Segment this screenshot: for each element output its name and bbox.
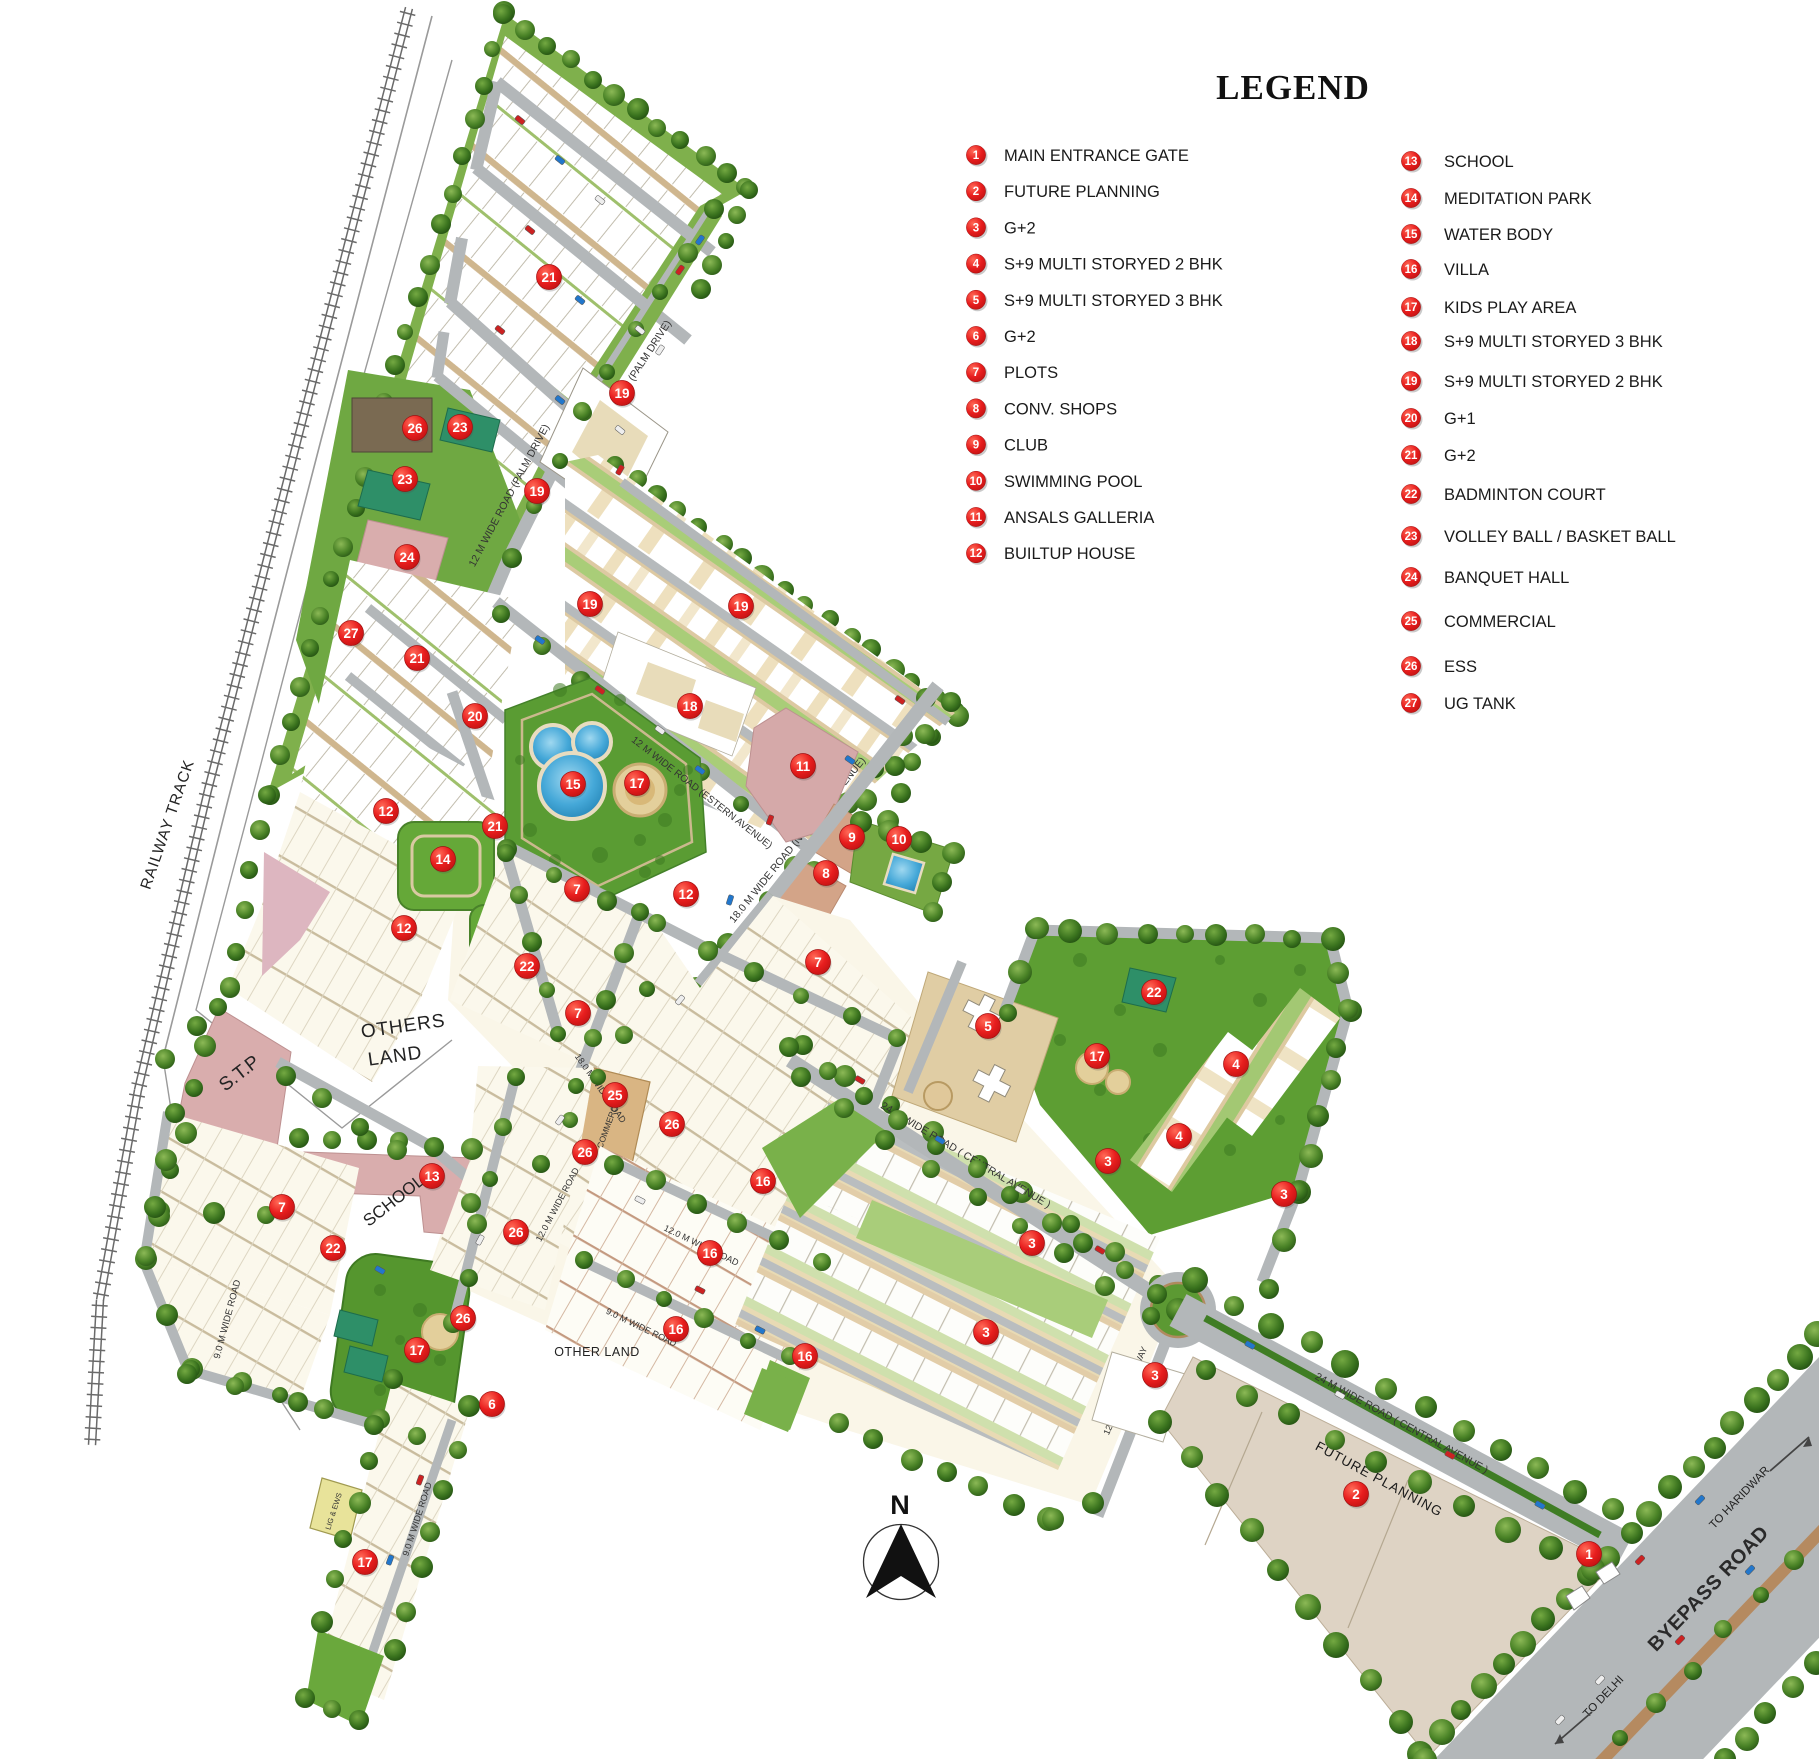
svg-text:S+9 MULTI STORYED 2 BHK: S+9 MULTI STORYED 2 BHK — [1444, 373, 1663, 391]
svg-text:2: 2 — [973, 186, 979, 198]
svg-text:16: 16 — [797, 1349, 813, 1364]
svg-text:16: 16 — [702, 1246, 718, 1261]
svg-text:21: 21 — [1405, 450, 1418, 462]
svg-text:15: 15 — [565, 777, 581, 792]
svg-text:27: 27 — [343, 626, 358, 641]
svg-text:3: 3 — [982, 1325, 990, 1340]
svg-text:FUTURE PLANNING: FUTURE PLANNING — [1004, 183, 1160, 201]
svg-text:26: 26 — [577, 1145, 593, 1160]
svg-text:S+9 MULTI STORYED 3 BHK: S+9 MULTI STORYED 3 BHK — [1004, 292, 1223, 310]
svg-text:CLUB: CLUB — [1004, 437, 1048, 455]
svg-text:12: 12 — [970, 548, 983, 560]
svg-text:N: N — [890, 1490, 910, 1520]
svg-text:ESS: ESS — [1444, 658, 1477, 676]
svg-text:18: 18 — [1405, 336, 1418, 348]
svg-text:17: 17 — [357, 1555, 372, 1570]
svg-text:2: 2 — [1352, 1487, 1360, 1502]
svg-text:22: 22 — [1146, 985, 1161, 1000]
svg-text:MEDITATION PARK: MEDITATION PARK — [1444, 190, 1592, 208]
svg-text:3: 3 — [973, 222, 979, 234]
svg-text:24: 24 — [399, 550, 415, 565]
svg-text:6: 6 — [973, 331, 979, 343]
svg-text:10: 10 — [970, 476, 983, 488]
svg-text:4: 4 — [1232, 1057, 1240, 1072]
svg-text:16: 16 — [755, 1174, 771, 1189]
svg-text:BANQUET HALL: BANQUET HALL — [1444, 569, 1569, 587]
svg-text:BUILTUP HOUSE: BUILTUP HOUSE — [1004, 545, 1135, 563]
svg-text:19: 19 — [582, 597, 597, 612]
svg-text:7: 7 — [973, 367, 979, 379]
svg-text:WATER BODY: WATER BODY — [1444, 226, 1553, 244]
svg-text:G+2: G+2 — [1444, 447, 1476, 465]
svg-text:PLOTS: PLOTS — [1004, 364, 1058, 382]
svg-text:S+9 MULTI STORYED 3 BHK: S+9 MULTI STORYED 3 BHK — [1444, 333, 1663, 351]
svg-text:14: 14 — [1405, 193, 1418, 205]
svg-text:G+2: G+2 — [1004, 219, 1036, 237]
svg-text:9: 9 — [973, 440, 979, 452]
svg-text:22: 22 — [519, 959, 534, 974]
svg-text:17: 17 — [1405, 302, 1418, 314]
svg-text:7: 7 — [814, 955, 822, 970]
svg-text:3: 3 — [1028, 1236, 1036, 1251]
svg-text:G+1: G+1 — [1444, 410, 1476, 428]
svg-text:19: 19 — [1405, 376, 1418, 388]
svg-text:LEGEND: LEGEND — [1216, 68, 1370, 107]
svg-text:1: 1 — [1585, 1547, 1593, 1562]
svg-text:4: 4 — [1175, 1129, 1183, 1144]
svg-text:5: 5 — [984, 1019, 992, 1034]
svg-text:ANSALS GALLERIA: ANSALS GALLERIA — [1004, 509, 1154, 527]
svg-text:SWIMMING POOL: SWIMMING POOL — [1004, 473, 1142, 491]
svg-text:7: 7 — [573, 882, 581, 897]
svg-text:UG TANK: UG TANK — [1444, 695, 1516, 713]
svg-text:23: 23 — [452, 420, 468, 435]
svg-text:VOLLEY BALL / BASKET BALL: VOLLEY BALL / BASKET BALL — [1444, 528, 1676, 546]
svg-text:7: 7 — [574, 1006, 582, 1021]
svg-text:12: 12 — [396, 921, 411, 936]
svg-text:KIDS PLAY AREA: KIDS PLAY AREA — [1444, 299, 1576, 317]
svg-text:16: 16 — [1405, 264, 1418, 276]
svg-text:4: 4 — [973, 259, 980, 271]
svg-text:19: 19 — [614, 386, 629, 401]
svg-text:11: 11 — [970, 512, 983, 524]
svg-text:23: 23 — [1405, 531, 1418, 543]
svg-text:21: 21 — [541, 270, 557, 285]
svg-text:17: 17 — [409, 1343, 424, 1358]
svg-text:3: 3 — [1104, 1154, 1112, 1169]
svg-text:8: 8 — [822, 866, 830, 881]
svg-text:20: 20 — [1405, 413, 1418, 425]
svg-text:10: 10 — [891, 832, 906, 847]
svg-text:1: 1 — [973, 150, 980, 162]
svg-text:7: 7 — [278, 1200, 286, 1215]
svg-text:24: 24 — [1405, 572, 1418, 584]
svg-text:9: 9 — [848, 830, 856, 845]
svg-text:BADMINTON COURT: BADMINTON COURT — [1444, 486, 1606, 504]
svg-text:21: 21 — [409, 651, 425, 666]
svg-text:12: 12 — [378, 804, 393, 819]
svg-text:13: 13 — [424, 1169, 440, 1184]
svg-text:25: 25 — [1405, 616, 1418, 628]
svg-text:13: 13 — [1405, 156, 1418, 168]
svg-text:G+2: G+2 — [1004, 328, 1036, 346]
svg-text:3: 3 — [1280, 1187, 1288, 1202]
svg-text:MAIN ENTRANCE GATE: MAIN ENTRANCE GATE — [1004, 147, 1189, 165]
svg-text:27: 27 — [1405, 698, 1418, 710]
svg-text:19: 19 — [529, 484, 544, 499]
svg-text:COMMERCIAL: COMMERCIAL — [1444, 613, 1556, 631]
svg-text:26: 26 — [508, 1225, 524, 1240]
svg-text:S+9 MULTI STORYED 2 BHK: S+9 MULTI STORYED 2 BHK — [1004, 256, 1223, 274]
svg-text:8: 8 — [973, 403, 980, 415]
svg-text:18: 18 — [682, 699, 698, 714]
svg-text:22: 22 — [1405, 489, 1418, 501]
svg-text:26: 26 — [455, 1311, 471, 1326]
svg-text:5: 5 — [973, 295, 980, 307]
svg-text:19: 19 — [733, 599, 748, 614]
svg-text:23: 23 — [397, 472, 413, 487]
svg-text:6: 6 — [488, 1397, 496, 1412]
svg-text:22: 22 — [325, 1241, 340, 1256]
svg-text:3: 3 — [1151, 1368, 1159, 1383]
svg-text:26: 26 — [407, 421, 423, 436]
svg-text:17: 17 — [629, 776, 644, 791]
svg-text:26: 26 — [1405, 661, 1418, 673]
svg-text:11: 11 — [796, 759, 811, 774]
svg-text:17: 17 — [1089, 1049, 1104, 1064]
svg-text:14: 14 — [435, 852, 451, 867]
svg-text:25: 25 — [607, 1088, 623, 1103]
svg-text:OTHER LAND: OTHER LAND — [554, 1345, 640, 1359]
svg-text:CONV. SHOPS: CONV. SHOPS — [1004, 400, 1117, 418]
svg-text:26: 26 — [664, 1117, 680, 1132]
svg-text:VILLA: VILLA — [1444, 261, 1489, 279]
svg-text:20: 20 — [467, 709, 482, 724]
svg-text:15: 15 — [1405, 229, 1418, 241]
svg-text:16: 16 — [668, 1322, 684, 1337]
svg-text:12: 12 — [678, 887, 693, 902]
svg-text:21: 21 — [487, 819, 503, 834]
svg-text:SCHOOL: SCHOOL — [1444, 153, 1514, 171]
